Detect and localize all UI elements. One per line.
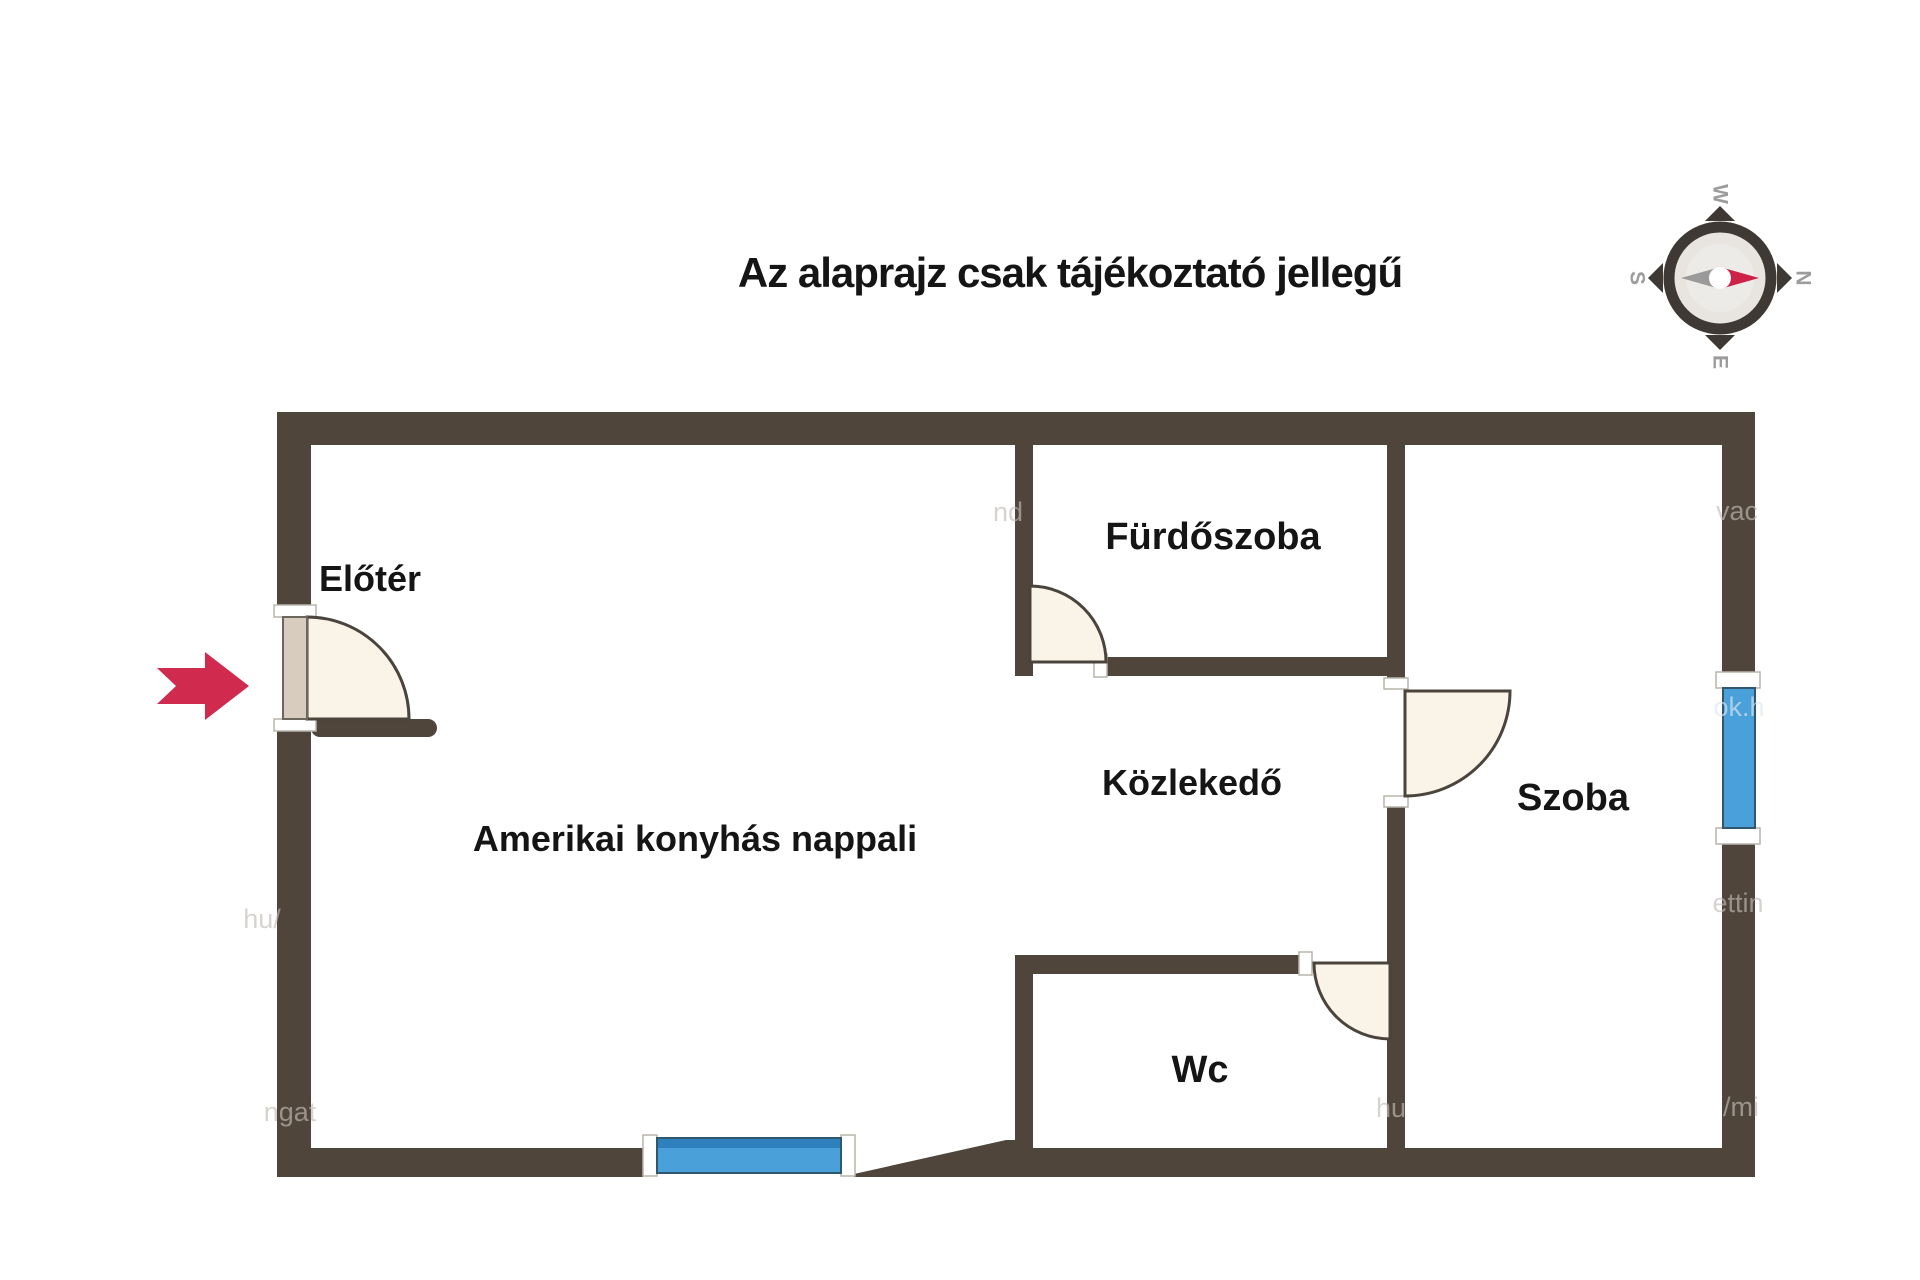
outer-wall-bottom-right: [1015, 1148, 1722, 1177]
szoba-wall-upper: [1387, 445, 1405, 678]
entrance-arrow-icon: [157, 652, 249, 720]
bathroom-wall-bottom: [1106, 657, 1405, 676]
watermark-fragment: ngat: [264, 1097, 317, 1127]
compass-hub: [1709, 267, 1731, 289]
compass-label-s: S: [1625, 271, 1648, 285]
room-label-furdoszoba: Fürdőszoba: [1105, 516, 1321, 558]
compass-rose: N E S W: [1625, 184, 1814, 369]
room-label-wc: Wc: [1172, 1049, 1229, 1091]
room-label-szoba: Szoba: [1517, 777, 1630, 819]
room-label-nappali: Amerikai konyhás nappali: [473, 818, 917, 859]
bottom-window-jamb-right: [841, 1135, 855, 1176]
wc-wall-top: [1015, 955, 1311, 974]
watermark-fragment: hu/: [243, 904, 281, 934]
compass-label-e: E: [1708, 355, 1731, 369]
szoba-door-jamb-bottom: [1384, 796, 1408, 807]
compass-point-w: [1705, 206, 1735, 221]
compass-point-n: [1777, 263, 1792, 293]
wc-wall-left: [1015, 955, 1033, 1177]
watermark-fragment: nd: [993, 497, 1023, 527]
room-label-eloter: Előtér: [319, 558, 421, 599]
szoba-door-swing: [1405, 691, 1510, 796]
entry-jamb-top: [274, 605, 316, 617]
entry-jamb-bottom: [274, 719, 316, 731]
bottom-window-jamb-left: [643, 1135, 657, 1176]
watermark-fragment: vac: [1716, 496, 1758, 526]
compass-label-n: N: [1791, 270, 1814, 285]
bathroom-door-swing: [1030, 586, 1106, 662]
compass-point-e: [1705, 335, 1735, 350]
watermark-fragment: ok.h: [1713, 692, 1764, 722]
watermark-fragment: /mi: [1723, 1092, 1759, 1122]
compass-point-s: [1648, 263, 1663, 293]
entry-door-swing: [307, 617, 409, 719]
watermark-fragment: ettin: [1712, 888, 1763, 918]
room-label-kozlekedo: Közlekedő: [1102, 762, 1282, 803]
wc-door-swing: [1314, 963, 1390, 1039]
right-window-jamb-bottom: [1716, 828, 1760, 844]
windows: [657, 688, 1755, 1173]
outer-wall-bottom-left: [277, 1148, 643, 1177]
entry-door-leaf: [283, 617, 307, 719]
outer-wall-bottom-sloped: [854, 1140, 1015, 1177]
wc-door-jamb: [1299, 952, 1312, 975]
floor-plan: N E S W Az alaprajz csak tájékoztató jel…: [0, 0, 1920, 1280]
right-window-jamb-top: [1716, 672, 1760, 688]
labels: Az alaprajz csak tájékoztató jellegű Elő…: [319, 249, 1630, 1091]
szoba-door-jamb-top: [1384, 678, 1408, 689]
doors: [283, 586, 1510, 1039]
outer-wall-left-upper: [277, 412, 311, 605]
outer-wall-top: [277, 412, 1755, 445]
watermark-fragment: hu: [1376, 1093, 1406, 1123]
disclaimer-title: Az alaprajz csak tájékoztató jellegű: [738, 249, 1402, 296]
outer-wall-right-upper: [1722, 412, 1755, 673]
window-bottom-edge: [658, 1139, 840, 1148]
entry-stub-wall: [311, 719, 437, 737]
compass-label-w: W: [1708, 184, 1731, 204]
